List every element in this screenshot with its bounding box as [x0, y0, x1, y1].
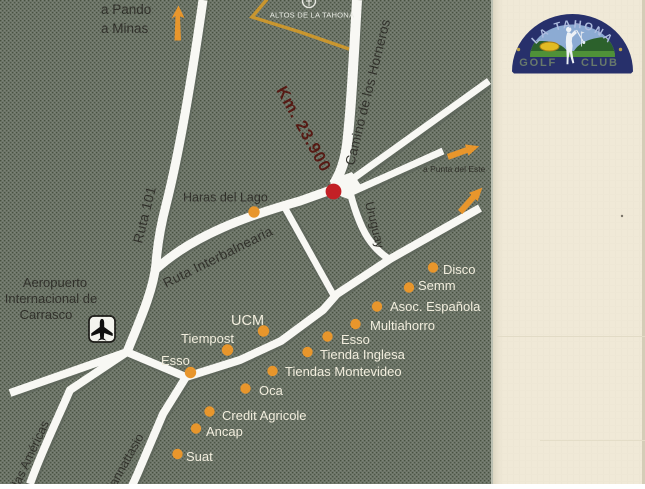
svg-text:Carrasco: Carrasco [20, 307, 73, 322]
svg-text:a Pando: a Pando [101, 2, 151, 17]
svg-text:Multiahorro: Multiahorro [370, 318, 435, 333]
svg-text:Oca: Oca [259, 383, 284, 398]
svg-text:Disco: Disco [443, 262, 476, 277]
svg-text:ALTOS DE LA TAHONA: ALTOS DE LA TAHONA [270, 11, 355, 20]
svg-text:CLUB: CLUB [581, 57, 619, 69]
svg-text:Asoc. Española: Asoc. Española [390, 299, 481, 314]
svg-text:Haras del Lago: Haras del Lago [183, 191, 268, 205]
svg-text:Semm: Semm [418, 278, 456, 293]
svg-text:Internacional de: Internacional de [5, 291, 98, 306]
svg-text:UCM: UCM [231, 313, 264, 329]
svg-text:GOLF: GOLF [519, 57, 557, 69]
svg-text:Suat: Suat [186, 449, 213, 464]
svg-text:Ancap: Ancap [206, 424, 243, 439]
svg-text:Esso: Esso [161, 353, 190, 368]
svg-text:Credit Agricole: Credit Agricole [222, 408, 307, 423]
svg-text:Tiempost: Tiempost [181, 331, 234, 346]
svg-text:a Punta del Este: a Punta del Este [423, 164, 486, 174]
svg-text:Tienda Inglesa: Tienda Inglesa [320, 347, 406, 362]
svg-text:Tiendas Montevideo: Tiendas Montevideo [285, 364, 402, 379]
svg-text:Aeropuerto: Aeropuerto [23, 275, 87, 290]
svg-text:Esso: Esso [341, 332, 370, 347]
svg-text:a Minas: a Minas [101, 21, 149, 36]
